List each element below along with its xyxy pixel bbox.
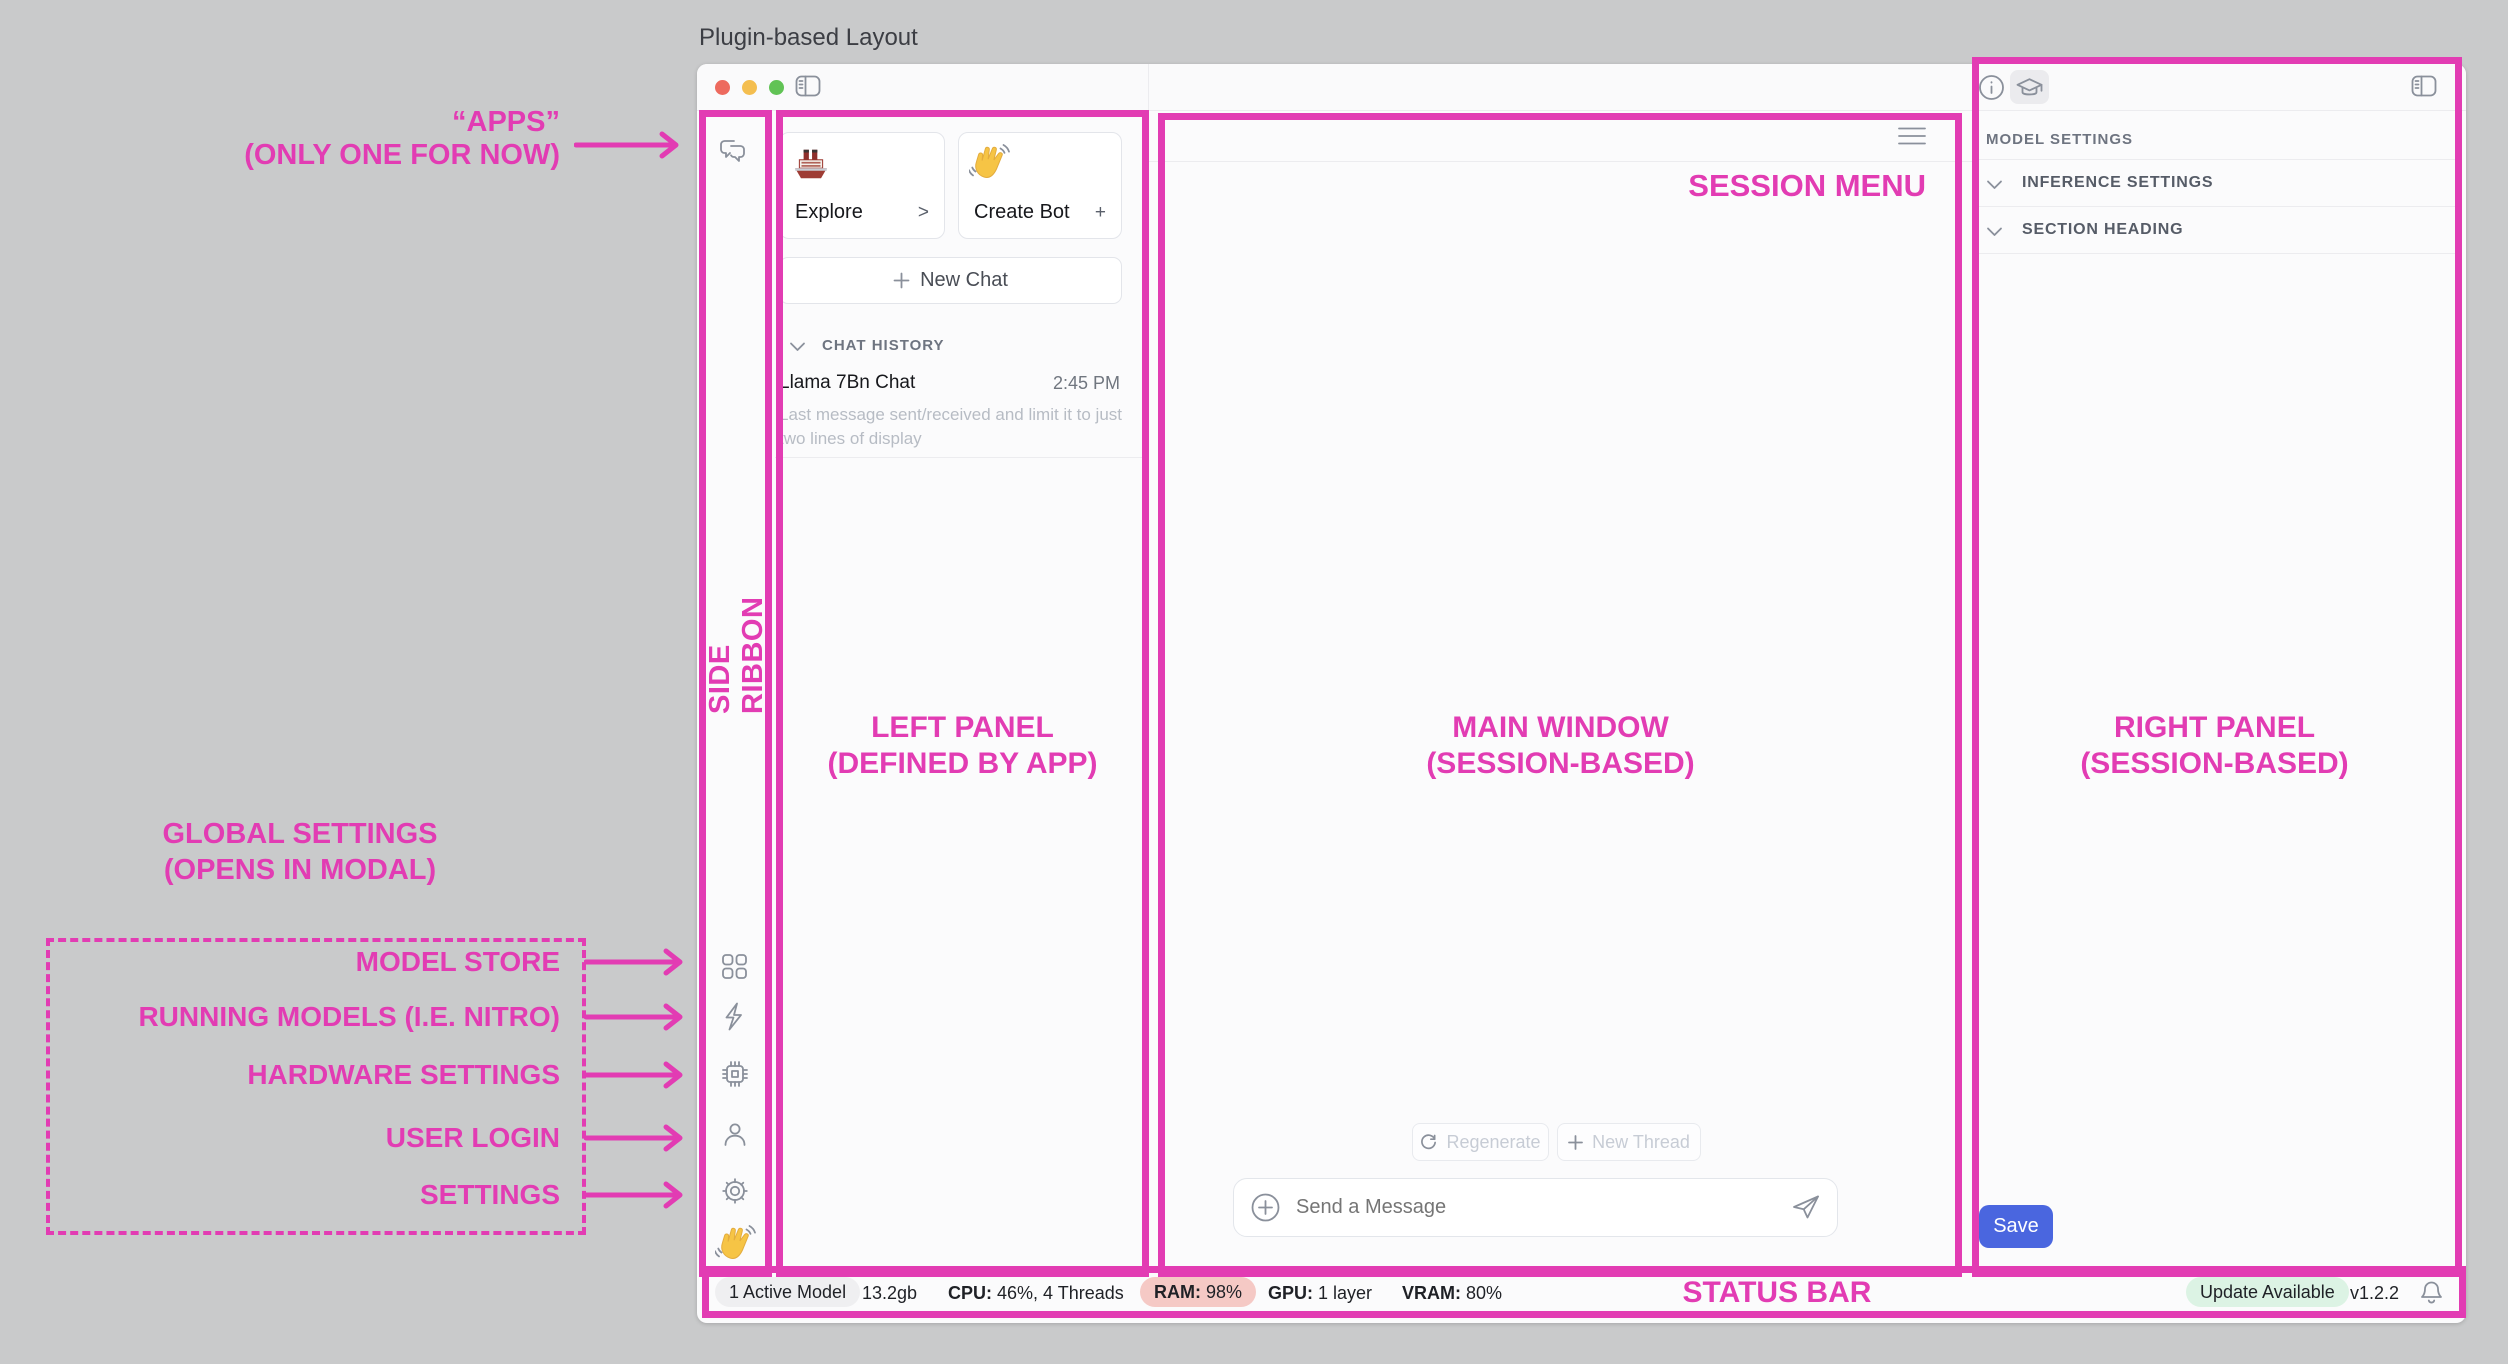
explore-card-label: Explore bbox=[795, 201, 863, 224]
chat-app-icon[interactable] bbox=[718, 138, 750, 166]
version-label: v1.2.2 bbox=[2350, 1283, 2399, 1304]
design-canvas: Plugin-based Layout bbox=[0, 0, 2508, 1364]
apps-arrow bbox=[574, 129, 692, 161]
right-panel-annotation-line1: RIGHT PANEL bbox=[2062, 710, 2367, 746]
apps-annotation-line2: (ONLY ONE FOR NOW) bbox=[140, 139, 560, 172]
session-menubar-divider bbox=[1149, 161, 1972, 162]
ship-icon bbox=[792, 145, 830, 183]
model-store-arrow bbox=[584, 946, 696, 978]
running-models-icon[interactable] bbox=[720, 1001, 749, 1032]
new-thread-label: New Thread bbox=[1592, 1132, 1690, 1153]
new-thread-button[interactable]: New Thread bbox=[1557, 1123, 1701, 1161]
global-settings-annotation-line1: GLOBAL SETTINGS bbox=[105, 816, 495, 852]
graduation-cap-icon bbox=[2016, 76, 2043, 99]
zoom-traffic-light[interactable] bbox=[769, 80, 784, 95]
vram-stat: VRAM: 80% bbox=[1402, 1283, 1502, 1304]
inference-settings-chevron-icon[interactable] bbox=[1986, 178, 2003, 191]
chat-item-title: Llama 7Bn Chat bbox=[779, 372, 915, 393]
global-settings-annotation-line2: (OPENS IN MODAL) bbox=[105, 852, 495, 888]
right-panel-annotation: RIGHT PANEL (SESSION-BASED) bbox=[2062, 710, 2367, 782]
new-chat-button[interactable]: New Chat bbox=[779, 257, 1122, 304]
gpu-stat: GPU: 1 layer bbox=[1268, 1283, 1372, 1304]
user-login-icon[interactable] bbox=[721, 1120, 749, 1148]
active-model-badge: 1 Active Model bbox=[715, 1277, 860, 1307]
regenerate-button[interactable]: Regenerate bbox=[1412, 1123, 1549, 1161]
left-panel-annotation-line2: (DEFINED BY APP) bbox=[810, 746, 1115, 782]
section-heading-row[interactable]: SECTION HEADING bbox=[2022, 221, 2183, 239]
save-button[interactable]: Save bbox=[1979, 1205, 2053, 1248]
memory-usage: 13.2gb bbox=[862, 1283, 917, 1304]
settings-annotation: SETTINGS bbox=[60, 1179, 560, 1211]
titlebar-divider bbox=[1148, 64, 1149, 110]
right-panel-divider bbox=[1972, 206, 2462, 207]
session-menu-icon[interactable] bbox=[1897, 126, 1927, 146]
right-sidebar-toggle-icon[interactable] bbox=[2411, 75, 2438, 98]
minimize-traffic-light[interactable] bbox=[742, 80, 757, 95]
status-bar-annotation: STATUS BAR bbox=[1627, 1276, 1927, 1310]
gpu-value: 1 layer bbox=[1318, 1283, 1372, 1303]
right-panel-divider bbox=[1972, 253, 2462, 254]
left-panel-divider bbox=[775, 457, 1149, 458]
hardware-settings-arrow bbox=[584, 1059, 696, 1091]
left-panel-annotation-line1: LEFT PANEL bbox=[810, 710, 1115, 746]
explore-card[interactable]: Explore > bbox=[779, 132, 945, 239]
send-icon[interactable] bbox=[1791, 1193, 1821, 1221]
session-menu-annotation: SESSION MENU bbox=[1626, 168, 1926, 204]
cpu-label: CPU: bbox=[948, 1283, 992, 1303]
regenerate-label: Regenerate bbox=[1446, 1132, 1540, 1153]
user-login-arrow bbox=[584, 1122, 696, 1154]
running-models-arrow bbox=[584, 1001, 696, 1033]
global-settings-annotation: GLOBAL SETTINGS (OPENS IN MODAL) bbox=[105, 816, 495, 888]
user-login-annotation: USER LOGIN bbox=[60, 1122, 560, 1154]
assistant-tab-active[interactable] bbox=[2010, 70, 2049, 104]
plus-icon bbox=[1568, 1135, 1583, 1150]
ram-stat-badge: RAM: 98% bbox=[1140, 1277, 1256, 1307]
info-tab-icon[interactable] bbox=[1978, 74, 2005, 101]
hardware-settings-annotation: HARDWARE SETTINGS bbox=[60, 1059, 560, 1091]
right-panel-annotation-line2: (SESSION-BASED) bbox=[2062, 746, 2367, 782]
create-bot-card-label: Create Bot bbox=[974, 201, 1070, 224]
plus-icon bbox=[893, 272, 910, 289]
chat-item-time: 2:45 PM bbox=[1053, 373, 1120, 394]
model-store-annotation: MODEL STORE bbox=[60, 946, 560, 978]
side-ribbon-annotation: SIDE RIBBON bbox=[704, 528, 770, 714]
left-panel-annotation: LEFT PANEL (DEFINED BY APP) bbox=[810, 710, 1115, 782]
wave-icon bbox=[969, 141, 1011, 183]
sidebar-toggle-icon[interactable] bbox=[795, 75, 822, 98]
notifications-bell-icon[interactable] bbox=[2418, 1276, 2445, 1306]
settings-gear-icon[interactable] bbox=[721, 1177, 749, 1205]
model-settings-header: MODEL SETTINGS bbox=[1986, 131, 2133, 148]
message-composer bbox=[1233, 1178, 1838, 1237]
close-traffic-light[interactable] bbox=[715, 80, 730, 95]
section-heading-chevron-icon[interactable] bbox=[1986, 225, 2003, 238]
app-window: Explore > Create Bot + New Chat CHAT HIS… bbox=[697, 64, 2466, 1323]
main-window-annotation: MAIN WINDOW (SESSION-BASED) bbox=[1408, 710, 1713, 782]
main-window-annotation-line2: (SESSION-BASED) bbox=[1408, 746, 1713, 782]
model-store-icon[interactable] bbox=[720, 952, 749, 981]
chat-list-item[interactable]: Llama 7Bn Chat 2:45 PM Last message sent… bbox=[779, 372, 1120, 451]
chat-history-chevron-icon[interactable] bbox=[789, 340, 806, 353]
window-titlebar bbox=[697, 64, 2466, 111]
explore-card-chevron: > bbox=[918, 202, 929, 224]
refresh-icon bbox=[1420, 1134, 1437, 1151]
create-bot-card[interactable]: Create Bot + bbox=[958, 132, 1122, 239]
hardware-settings-icon[interactable] bbox=[720, 1059, 750, 1089]
apps-annotation-line1: “APPS” bbox=[140, 106, 560, 139]
chat-item-preview: Last message sent/received and limit it … bbox=[779, 403, 1131, 451]
gpu-label: GPU: bbox=[1268, 1283, 1313, 1303]
settings-arrow bbox=[584, 1179, 696, 1211]
vram-label: VRAM: bbox=[1402, 1283, 1461, 1303]
chat-history-header: CHAT HISTORY bbox=[822, 337, 945, 354]
cpu-value: 46%, 4 Threads bbox=[997, 1283, 1124, 1303]
send-message-input[interactable] bbox=[1294, 1179, 1748, 1236]
inference-settings-row[interactable]: INFERENCE SETTINGS bbox=[2022, 174, 2213, 192]
ram-label: RAM: bbox=[1154, 1282, 1201, 1302]
vram-value: 80% bbox=[1466, 1283, 1502, 1303]
create-bot-card-plus: + bbox=[1095, 202, 1106, 224]
running-models-annotation: RUNNING MODELS (I.E. NITRO) bbox=[60, 1001, 560, 1033]
new-chat-label: New Chat bbox=[920, 269, 1008, 292]
update-available-badge[interactable]: Update Available bbox=[2186, 1277, 2349, 1307]
apps-annotation: “APPS” (ONLY ONE FOR NOW) bbox=[140, 106, 560, 172]
right-panel-divider bbox=[1972, 159, 2462, 160]
attach-plus-circle-icon[interactable] bbox=[1250, 1192, 1281, 1223]
cpu-stat: CPU: 46%, 4 Threads bbox=[948, 1283, 1124, 1304]
page-title: Plugin-based Layout bbox=[699, 24, 918, 52]
wave-hand-icon[interactable] bbox=[715, 1222, 757, 1264]
ram-value: 98% bbox=[1206, 1282, 1242, 1302]
main-window-annotation-line1: MAIN WINDOW bbox=[1408, 710, 1713, 746]
